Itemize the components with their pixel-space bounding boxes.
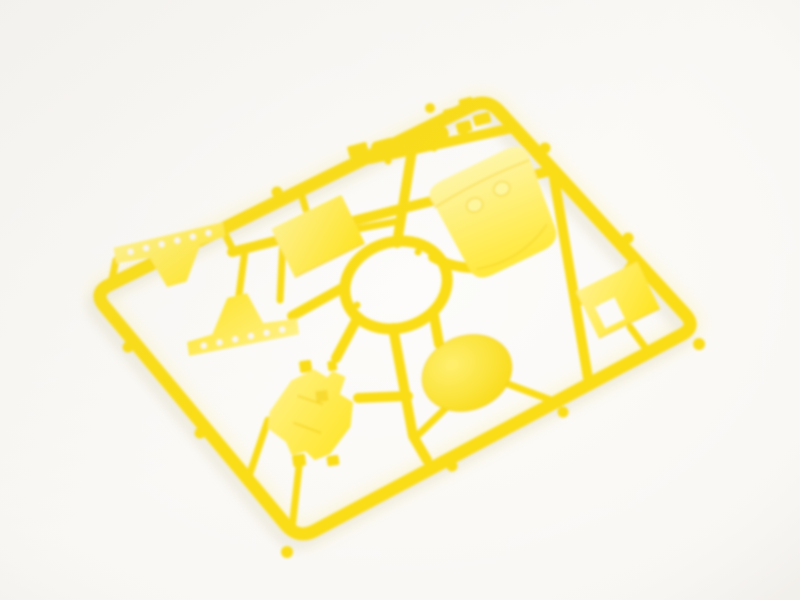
corner-shade [0, 0, 800, 600]
photo-canvas [0, 0, 800, 600]
sprue-photo [0, 0, 800, 600]
